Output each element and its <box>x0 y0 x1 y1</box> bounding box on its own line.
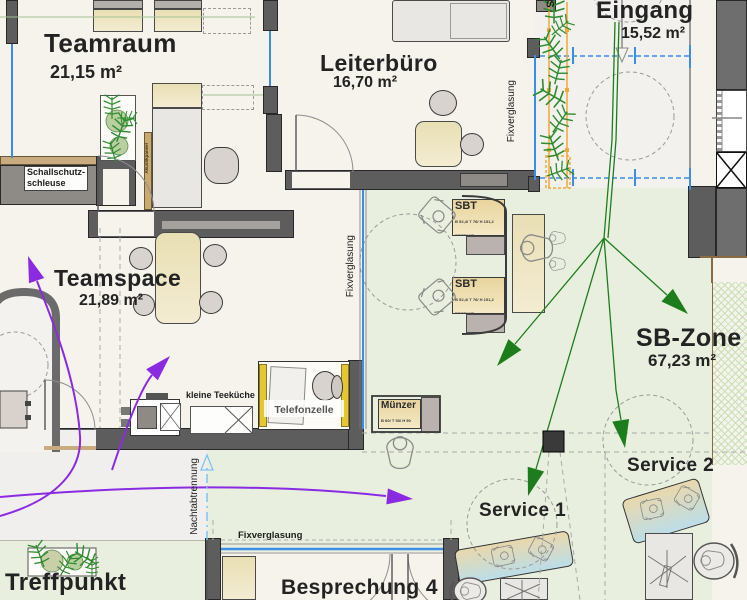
muenzer-machine: Münzer B 60/ T 50/ H 90 BESTAND <box>378 399 421 429</box>
desk-leiterbuero <box>415 121 462 167</box>
teekueche-counter <box>190 406 253 434</box>
sbt2-title: SBT <box>455 279 502 290</box>
nachtabtrennung-label: Nachtabtrennung <box>189 458 200 535</box>
chair-teamspace-3 <box>199 291 223 314</box>
sbt2-drawer <box>466 314 505 333</box>
teekueche-label: kleine Teeküche <box>186 390 255 400</box>
room-title-eingang: Eingang <box>596 0 693 25</box>
desk-main-top <box>152 83 202 108</box>
room-title-service2: Service 2 <box>627 455 714 477</box>
cabinet-besprechung <box>222 556 256 600</box>
schallschutz-door-notch <box>103 169 129 205</box>
floor-corridor <box>0 448 207 540</box>
service1-desk <box>500 578 548 600</box>
door-gap-teamspace <box>44 430 96 448</box>
wall-post-topleft <box>6 0 18 44</box>
room-area-sb-zone: 67,23 m² <box>648 351 716 371</box>
stair-label-fragment: S <box>544 0 556 7</box>
printer-right-panel <box>160 403 181 431</box>
sbt1-dims: B 52,4/ T 76/ H 151,2 <box>455 220 494 224</box>
room-title-teamspace: Teamspace <box>54 265 181 292</box>
schallschutz-line1: Schallschutz- <box>27 167 85 178</box>
fixverglasung-label-sbzone: Fixverglasung <box>345 235 356 297</box>
desk-alt-position-1 <box>203 8 251 34</box>
standing-desk <box>512 214 545 313</box>
door-gap-leiterbuero <box>292 172 350 188</box>
room-title-treffpunkt: Treffpunkt <box>5 569 126 597</box>
room-area-teamspace: 21,89 m² <box>79 292 143 310</box>
wall-eingang-southeast <box>688 186 716 258</box>
service2-desk <box>645 533 693 600</box>
plant-box-teamraum <box>100 95 136 161</box>
printer-knob-1 <box>121 407 130 415</box>
room-title-leiterbuero: Leiterbüro <box>320 50 438 77</box>
room-title-sb-zone: SB-Zone <box>636 324 742 353</box>
wall-leiterbuero-seg <box>460 173 508 187</box>
schallschutz-sill <box>0 156 98 165</box>
office-chair-teamraum <box>204 147 239 184</box>
chair-leiterbuero-1 <box>429 90 457 116</box>
wall-divider-lower <box>266 114 282 172</box>
muenzer-title: Münzer <box>381 401 418 411</box>
printer-knob-2 <box>121 419 130 427</box>
wall-eingang-post-bot <box>528 176 540 192</box>
sbt1-status: BESTAND <box>455 234 474 236</box>
lounge-table-panel <box>450 3 507 39</box>
booth-panel-right <box>341 364 349 427</box>
sbt2-dims: B 52,4/ T 76/ H 151,2 <box>455 298 494 302</box>
chair-leiterbuero-2 <box>460 133 484 156</box>
muenzer-dims: B 60/ T 50/ H 90 <box>381 419 411 423</box>
telefonzelle-label-bar: Telefonzelle <box>264 400 344 417</box>
wall-teamraum-shelf <box>162 221 280 229</box>
room-title-teamraum: Teamraum <box>44 28 177 59</box>
wall-eingang-post-top <box>527 38 540 58</box>
sbt1-drawer <box>466 236 505 255</box>
muenzer-side-unit <box>421 397 440 433</box>
floor-plan: SBT B 52,4/ T 76/ H 151,2 BESTAND SBT B … <box>0 0 747 600</box>
chair-teamspace-2 <box>203 244 227 267</box>
room-area-teamraum: 21,15 m² <box>50 62 122 83</box>
fixverglasung-label-eingang: Fixverglasung <box>506 80 517 142</box>
desk-main-body <box>152 108 202 208</box>
door-gap-teamraum <box>98 212 154 236</box>
sbt2-status: BESTAND <box>455 312 474 314</box>
fixverglasung-label-besprechung: Fixverglasung <box>238 530 302 541</box>
sbt-machine-1: SBT B 52,4/ T 76/ H 151,2 BESTAND <box>452 199 505 236</box>
printer-top-bar <box>146 393 168 400</box>
desk-top-2 <box>154 0 202 9</box>
wall-besprechung-post-left <box>205 538 221 600</box>
telefonzelle-label: Telefonzelle <box>274 404 333 416</box>
window-opening-right <box>716 90 747 152</box>
window-dash-strip <box>717 91 722 151</box>
wall-outer-right-top <box>716 0 747 90</box>
sbt1-title: SBT <box>455 201 502 212</box>
booth-panel-left <box>259 364 267 427</box>
sbt-machine-2: SBT B 52,4/ T 76/ H 151,2 BESTAND <box>452 277 505 314</box>
wall-divider-post1 <box>263 0 278 31</box>
column-x-box <box>716 152 747 188</box>
exterior-hatch-area <box>712 282 747 465</box>
printer-inner <box>137 406 157 429</box>
wall-telefonzelle-right <box>348 360 364 450</box>
booth-chair-back <box>331 375 343 399</box>
room-area-leiterbuero: 16,70 m² <box>333 74 397 92</box>
room-title-service1: Service 1 <box>479 500 566 522</box>
desk-top-1 <box>93 0 143 9</box>
schallschutz-label: Schallschutz- schleuse <box>24 166 88 191</box>
schallschutz-line2: schleuse <box>27 178 85 189</box>
desk-alt-position-2 <box>202 85 254 110</box>
room-area-eingang: 15,52 m² <box>621 25 685 43</box>
wall-eingang-east-line <box>689 0 691 188</box>
room-title-besprechung4: Besprechung 4 <box>281 576 438 600</box>
wall-divider-post2 <box>263 86 278 114</box>
akustikpaneel-label: Akustikpaneel <box>144 143 149 174</box>
wall-outer-right-mid <box>716 188 747 258</box>
